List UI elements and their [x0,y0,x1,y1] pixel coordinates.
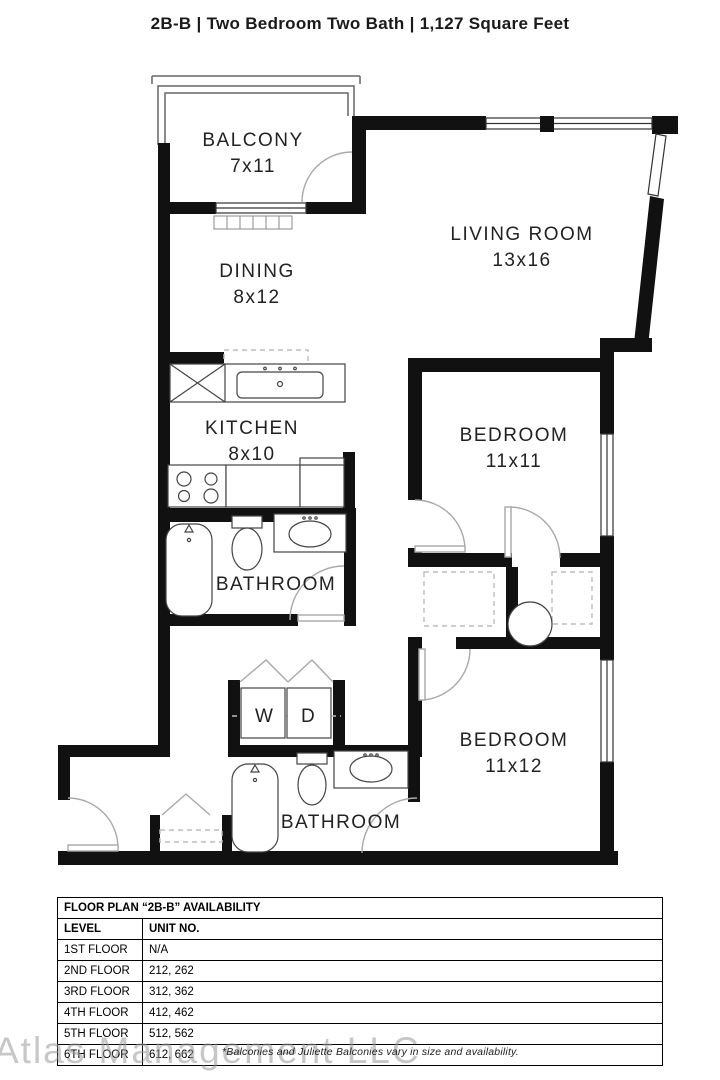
closet-rod-left [424,572,494,626]
table-row: 3RD FLOOR 312, 362 [58,982,663,1003]
kitchen-counter-2 [226,465,300,507]
bathtub [166,524,212,616]
counter-overhang [224,350,308,365]
stove [168,465,226,507]
balcony-label: BALCONY [202,130,303,151]
bedroom2-label: BEDROOM [460,730,569,751]
level-cell: 1ST FLOOR [58,940,143,961]
bathroom1-fixtures [166,514,346,616]
table-row: 4TH FLOOR 412, 462 [58,1003,663,1024]
dining-label: DINING [219,261,295,282]
unit-cell: N/A [143,940,663,961]
bedroom1-label: BEDROOM [460,425,569,446]
bedroom1-closet-door-leaf [505,507,511,557]
dining-sill [214,216,292,229]
window-mullion [540,116,554,132]
bedroom2-dims: 11x12 [485,756,543,777]
unit-cell: 212, 262 [143,961,663,982]
table-header-row: LEVEL UNIT NO. [58,919,663,940]
bedroom2-door-arc [422,649,470,700]
closet-rod-right [552,572,592,624]
water-heater [508,602,552,646]
bedroom1-closet-door-arc [510,507,560,558]
column-header-unit: UNIT NO. [143,919,663,940]
bedroom1-door-arc [415,500,465,550]
toilet-tank [232,516,262,528]
bathroom1-door-leaf [298,615,344,621]
entry-door-arc [68,798,118,848]
living-dims: 13x16 [492,250,551,271]
sink-basin [289,521,331,547]
bedroom1-door-leaf [415,546,465,552]
table-row: 2ND FLOOR 212, 262 [58,961,663,982]
column-header-level: LEVEL [58,919,143,940]
entry-closet-rod [160,830,222,842]
floor-plan-page: 2B-B | Two Bedroom Two Bath | 1,127 Squa… [0,0,720,1080]
windows [216,116,666,762]
table-title: FLOOR PLAN “2B-B” AVAILABILITY [58,898,663,919]
bathroom2-fixtures [232,751,408,852]
toilet-tank-2 [297,753,327,764]
bedroom1-dims: 11x11 [486,451,542,472]
toilet-bowl [232,528,262,570]
table-row: 1ST FLOOR N/A [58,940,663,961]
balcony-dims: 7x11 [230,156,276,177]
toilet-bowl-2 [298,765,326,805]
sink-basin-2 [350,756,392,782]
footnote: *Balconies and Juliette Balconies vary i… [222,1046,519,1058]
living-label: LIVING ROOM [450,224,593,245]
table-title-row: FLOOR PLAN “2B-B” AVAILABILITY [58,898,663,919]
level-cell: 4TH FLOOR [58,1003,143,1024]
floor-plan-svg: W D BALCONY 7x11 DINING 8x12 LIVING ROOM… [0,0,720,890]
unit-cell: 412, 462 [143,1003,663,1024]
dryer-label: D [301,706,315,727]
wd-bifold-doors [240,660,333,682]
unit-cell: 312, 362 [143,982,663,1003]
level-cell: 2ND FLOOR [58,961,143,982]
balcony-door-arc [302,152,352,202]
entry-door-leaf [68,845,118,851]
bedroom2-door-leaf [419,649,425,700]
bathroom2-label: BATHROOM [281,812,401,833]
kitchen-label: KITCHEN [205,418,299,439]
entry-closet-bifold-doors [162,794,210,815]
bathtub-2 [232,764,278,852]
kitchen-dims: 8x10 [228,444,275,465]
level-cell: 3RD FLOOR [58,982,143,1003]
bathroom1-label: BATHROOM [216,574,336,595]
dining-dims: 8x12 [233,287,280,308]
washer-label: W [255,706,273,727]
